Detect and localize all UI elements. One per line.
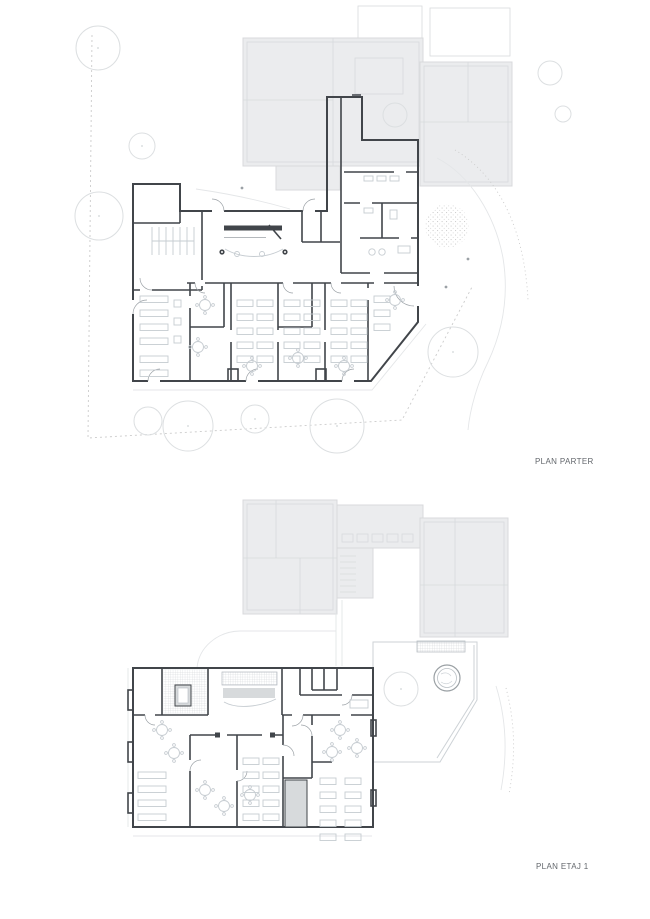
new-building-etaj1: [128, 668, 376, 827]
floor-plan-parter: [75, 6, 571, 453]
door-openings: [130, 169, 422, 385]
terrace: [373, 642, 477, 762]
plan-parter-label: PLAN PARTER: [535, 458, 594, 466]
hatched-tree: [425, 204, 469, 248]
plan-etaj1-label: PLAN ETAJ 1: [536, 863, 589, 871]
shaft: [285, 780, 307, 827]
bench: [223, 688, 275, 698]
drawing-sheet: PLAN PARTER PLAN ETAJ 1: [0, 0, 650, 919]
existing-buildings-etaj1: [243, 500, 508, 637]
furniture-etaj1: [138, 721, 366, 841]
round-planter: [434, 665, 460, 691]
skylight-void: [222, 672, 277, 685]
planter-strip: [417, 641, 465, 652]
bath-fixtures: [364, 176, 410, 255]
road-curve: [437, 158, 505, 430]
column: [283, 250, 287, 254]
column: [220, 250, 224, 254]
furniture-parter: [140, 249, 404, 377]
floor-plan-etaj1: [128, 500, 514, 841]
sofa: [225, 249, 283, 257]
